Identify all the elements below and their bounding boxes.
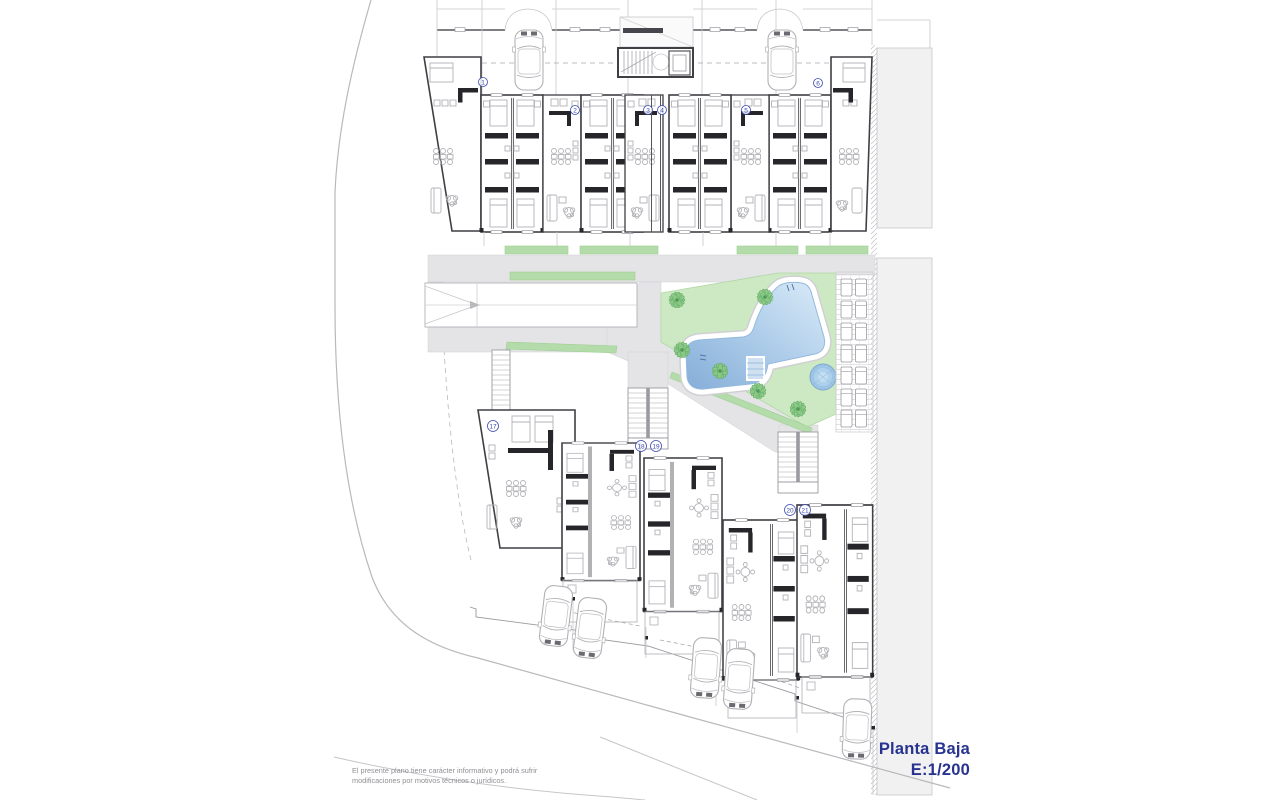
unit-18: [561, 442, 642, 582]
pool-steps: [747, 357, 764, 380]
svg-text:6: 6: [816, 80, 820, 87]
unit-marker: 6: [814, 79, 823, 88]
unit-19: [643, 457, 724, 613]
plan-scale: E:1/200: [745, 760, 970, 781]
svg-text:21: 21: [801, 507, 809, 514]
svg-text:5: 5: [744, 107, 748, 114]
unit-marker: 18: [636, 441, 647, 452]
unit-marker: 20: [785, 505, 796, 516]
car-icon: [536, 584, 576, 648]
unit-marker: 5: [742, 106, 751, 115]
site-plan-drawing: 1234561718192021: [0, 0, 1280, 800]
car-icon: [766, 30, 799, 90]
disclaimer-note: El presente plano tiene carácter informa…: [352, 766, 584, 785]
access-ramp: [425, 283, 637, 327]
garage-door-arc: [757, 9, 803, 30]
car-icon: [513, 30, 546, 90]
car-icon: [720, 648, 757, 710]
svg-text:19: 19: [652, 443, 660, 450]
unit-marker: 21: [800, 505, 811, 516]
stair-core: [618, 17, 693, 77]
neighbour-parcels: [871, 20, 932, 795]
svg-text:3: 3: [646, 107, 650, 114]
row-units-left: [480, 94, 664, 234]
svg-text:17: 17: [489, 423, 497, 430]
top-building: [424, 0, 872, 246]
car-icon: [570, 596, 610, 660]
car-icon: [687, 637, 724, 699]
floor-plan-page: 1234561718192021 Planta Baja E:1/200 El …: [0, 0, 1280, 800]
svg-text:20: 20: [786, 507, 794, 514]
unit-marker: 19: [651, 441, 662, 452]
stairs-icon: [628, 388, 668, 449]
plan-title: Planta Baja: [745, 739, 970, 760]
unit-marker: 2: [571, 106, 580, 115]
disclaimer-line: modificaciones por motivos técnicos o ju…: [352, 776, 584, 786]
svg-text:18: 18: [637, 443, 645, 450]
unit-21: [796, 503, 875, 678]
title-block: Planta Baja E:1/200: [745, 739, 970, 781]
spa-circle: [810, 364, 836, 390]
row-units-right: [668, 94, 833, 234]
svg-text:1: 1: [481, 79, 485, 86]
unit-marker: 1: [479, 78, 488, 87]
stairs-icon: [492, 350, 510, 418]
stairs-icon: [778, 432, 818, 493]
unit-marker: 4: [658, 106, 667, 115]
unit-1: [424, 57, 481, 231]
street-edge: [600, 737, 757, 800]
sun-deck: [836, 272, 873, 432]
garage-door-arc: [505, 9, 552, 30]
svg-text:4: 4: [660, 107, 664, 114]
disclaimer-line: El presente plano tiene carácter informa…: [352, 766, 584, 776]
row-units-mirror-helper: [625, 95, 663, 232]
svg-text:2: 2: [573, 107, 577, 114]
unit-6: [831, 57, 872, 231]
unit-marker: 3: [644, 106, 653, 115]
unit-marker: 17: [488, 421, 499, 432]
